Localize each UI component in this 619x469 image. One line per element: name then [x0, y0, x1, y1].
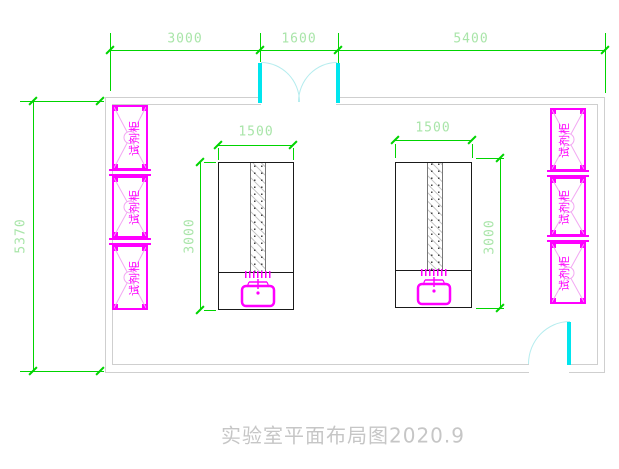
reagent-cabinet: 试剂柜 [112, 245, 148, 310]
dim-label-top-middle: 1600 [281, 32, 316, 47]
dim-label-bench-height: 3000 [483, 219, 498, 254]
cabinet-connector [547, 235, 589, 242]
door-leaf [258, 63, 262, 103]
cabinet-label: 试剂柜 [556, 189, 572, 225]
extension-line [218, 148, 219, 160]
extension-line [110, 33, 111, 91]
dim-label-left-wall: 5370 [14, 218, 29, 253]
bench-hatch-strip [250, 163, 266, 272]
cabinet-label: 试剂柜 [556, 122, 572, 158]
dim-label-top-right: 5400 [453, 32, 488, 47]
cabinet-connector [109, 169, 151, 176]
dim-label-bench-width: 1500 [238, 125, 273, 140]
door-swing-arc [298, 62, 337, 102]
dimension-line-top [110, 50, 605, 51]
dimension-line [500, 158, 501, 308]
sink-icon [415, 276, 453, 306]
door-leaf [336, 63, 340, 103]
reagent-cabinet: 试剂柜 [112, 105, 148, 170]
door-swing-arc [261, 62, 300, 102]
extension-line [204, 310, 216, 311]
dimension-line [200, 162, 201, 310]
bench-hatch-strip [427, 163, 443, 270]
cabinet-connector [547, 170, 589, 177]
dimension-line-left [33, 101, 34, 371]
cabinet-label: 试剂柜 [126, 260, 142, 296]
dimension-line [218, 145, 293, 146]
floor-plan-canvas: 3000 1600 5400 5370 试剂柜 试剂柜 试剂柜 试剂柜 试剂柜 [0, 0, 619, 469]
extension-line [472, 144, 473, 158]
extension-line [293, 148, 294, 160]
door-leaf [567, 322, 571, 365]
reagent-cabinet: 试剂柜 [550, 177, 586, 236]
reagent-cabinet: 试剂柜 [550, 242, 586, 304]
drawing-title: 实验室平面布局图2020.9 [221, 420, 465, 449]
dimension-line [395, 140, 472, 141]
dim-label-bench-height: 3000 [183, 218, 198, 253]
extension-line [204, 162, 216, 163]
reagent-cabinet: 试剂柜 [112, 176, 148, 238]
extension-line [395, 144, 396, 158]
dim-label-bench-width: 1500 [415, 121, 450, 136]
sink-grille [245, 271, 272, 278]
cabinet-label: 试剂柜 [556, 255, 572, 291]
dim-label-top-left: 3000 [167, 32, 202, 47]
sink-grille [421, 269, 448, 276]
cabinet-label: 试剂柜 [126, 189, 142, 225]
reagent-cabinet: 试剂柜 [550, 108, 586, 171]
cabinet-label: 试剂柜 [126, 120, 142, 156]
sink-icon [239, 278, 277, 308]
extension-line [605, 33, 606, 93]
cabinet-connector [109, 238, 151, 245]
